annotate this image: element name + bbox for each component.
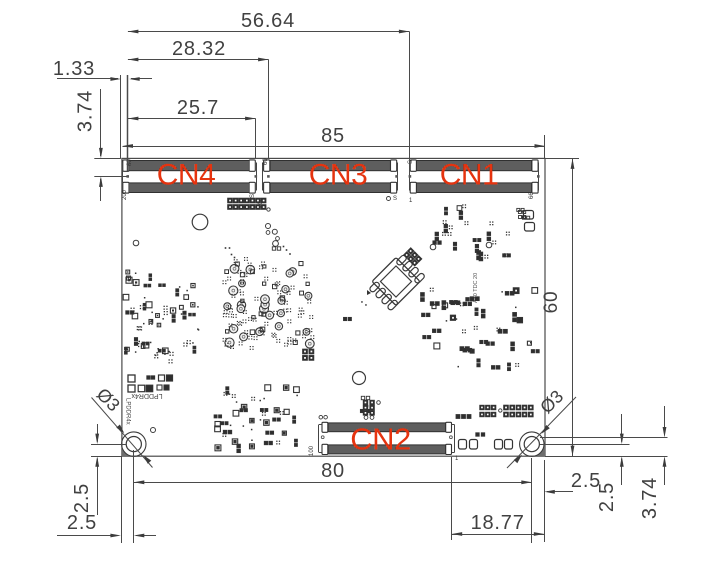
svg-text:LPDDR4x: LPDDR4x — [125, 398, 131, 425]
svg-text:2.5: 2.5 — [596, 482, 618, 512]
svg-text:LPDDR4x: LPDDR4x — [131, 392, 163, 399]
svg-text:1: 1 — [455, 456, 459, 462]
svg-text:60: 60 — [541, 291, 562, 314]
svg-text:25.7: 25.7 — [177, 97, 219, 119]
svg-text:CN4: CN4 — [157, 159, 216, 192]
svg-text:3.74: 3.74 — [639, 477, 661, 519]
svg-text:1.33: 1.33 — [53, 58, 95, 80]
svg-text:66: 66 — [529, 192, 535, 199]
svg-text:28.32: 28.32 — [172, 38, 226, 60]
svg-text:CN2: CN2 — [350, 421, 411, 456]
svg-text:18.77: 18.77 — [471, 512, 525, 534]
svg-text:2.5: 2.5 — [71, 483, 93, 513]
svg-text:1: 1 — [409, 198, 413, 204]
svg-text:S: S — [408, 160, 414, 164]
svg-text:100: 100 — [309, 445, 315, 456]
svg-text:CN1: CN1 — [440, 159, 499, 192]
svg-text:S: S — [250, 194, 256, 198]
svg-text:56.64: 56.64 — [241, 10, 295, 32]
svg-text:85: 85 — [321, 125, 345, 147]
svg-text:80: 80 — [321, 460, 345, 482]
svg-text:Ø3: Ø3 — [536, 386, 567, 417]
svg-text:2.5: 2.5 — [67, 512, 97, 534]
svg-text:S: S — [393, 196, 397, 202]
svg-text:60: 60 — [263, 158, 269, 165]
svg-text:Ø3: Ø3 — [93, 384, 124, 415]
svg-text:3.74: 3.74 — [75, 90, 97, 132]
svg-text:200: 200 — [122, 189, 128, 200]
svg-text:CN3: CN3 — [309, 159, 368, 192]
